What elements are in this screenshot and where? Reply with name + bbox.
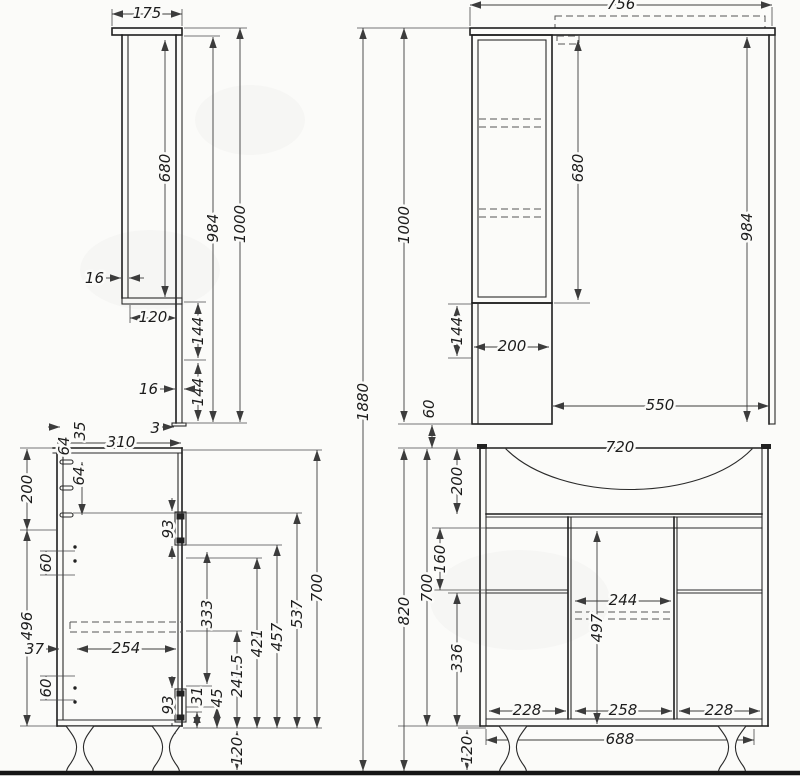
dim-label: 160: [431, 545, 449, 574]
dim-label: 984: [204, 214, 222, 243]
dim-label: 3: [150, 419, 160, 437]
dim-label: 144: [189, 317, 207, 346]
dim-label: 93: [159, 519, 177, 538]
vanity-side-dimensions: 310 35 64 64 200 496 60 60 37 254: [18, 421, 326, 770]
dim-label: 64: [70, 466, 88, 485]
dim-label: 64: [55, 436, 73, 455]
dim-label: 60: [420, 399, 438, 418]
dim-label: 550: [646, 396, 675, 414]
dim-label: 700: [308, 574, 326, 603]
dim-label: 37: [25, 640, 45, 658]
dim-label: 680: [569, 154, 587, 183]
dim-label: 35: [71, 421, 89, 440]
dim-label: 241.5: [228, 655, 246, 698]
dim-label: 16: [85, 269, 104, 287]
dim-label: 228: [513, 701, 542, 719]
dim-label: 120: [458, 736, 476, 765]
dim-label: 120: [139, 308, 168, 326]
dim-label: 497: [588, 613, 606, 642]
dim-label: 31: [188, 686, 206, 705]
dim-label: 45: [208, 688, 226, 707]
dim-label: 258: [609, 701, 638, 719]
dim-label: 144: [189, 378, 207, 407]
dim-label: 200: [18, 475, 36, 504]
mirror-side-view: 175 680 984 1000 16 120 144 144 1: [85, 4, 249, 437]
dim-label: 120: [228, 737, 246, 766]
dim-label: 984: [738, 213, 756, 242]
dim-label: 93: [159, 695, 177, 714]
dim-label: 60: [37, 678, 55, 697]
dim-label: 200: [448, 467, 466, 496]
dim-label: 228: [705, 701, 734, 719]
dim-label: 254: [112, 639, 141, 657]
dim-label: 720: [606, 438, 635, 456]
dim-label: 1000: [395, 206, 413, 244]
dim-label: 144: [448, 317, 466, 346]
dim-label: 421: [248, 629, 266, 658]
mirror-side-dimensions: 175 680 984 1000 16 120 144 144 1: [85, 4, 249, 437]
vanity-side-view: 310 35 64 64 200 496 60 60 37 254: [18, 421, 326, 773]
mirror-side-outline: [112, 28, 186, 426]
dim-label: 60: [37, 553, 55, 572]
dim-label: 680: [156, 154, 174, 183]
dim-label: 537: [288, 599, 306, 628]
vanity-side-legs: [66, 726, 180, 773]
mirror-front-outline: [470, 16, 775, 424]
dim-label: 496: [18, 612, 36, 641]
dim-label: 457: [268, 622, 286, 651]
mirror-front-view: 756 1000 1880 680 984 144 200 550 60: [354, 0, 775, 771]
vanity-side-outline: [53, 448, 186, 726]
dim-label: 688: [606, 730, 635, 748]
dim-label: 333: [198, 600, 216, 629]
drawing-canvas: 175 680 984 1000 16 120 144 144 1: [0, 0, 800, 776]
dim-label: 16: [139, 380, 158, 398]
dim-label: 700: [418, 574, 436, 603]
dim-label: 336: [448, 644, 466, 673]
dim-label: 310: [107, 433, 136, 451]
dim-label: 200: [498, 337, 527, 355]
mirror-front-dimensions: 756 1000 1880 680 984 144 200 550 60: [354, 0, 772, 771]
dim-label: 1880: [354, 383, 372, 421]
dim-label: 1000: [231, 205, 249, 243]
dim-label: 820: [395, 597, 413, 626]
dim-label: 756: [607, 0, 636, 13]
dim-label: 175: [133, 4, 162, 22]
technical-drawing-page: 175 680 984 1000 16 120 144 144 1: [0, 0, 800, 776]
dim-label: 244: [609, 591, 638, 609]
